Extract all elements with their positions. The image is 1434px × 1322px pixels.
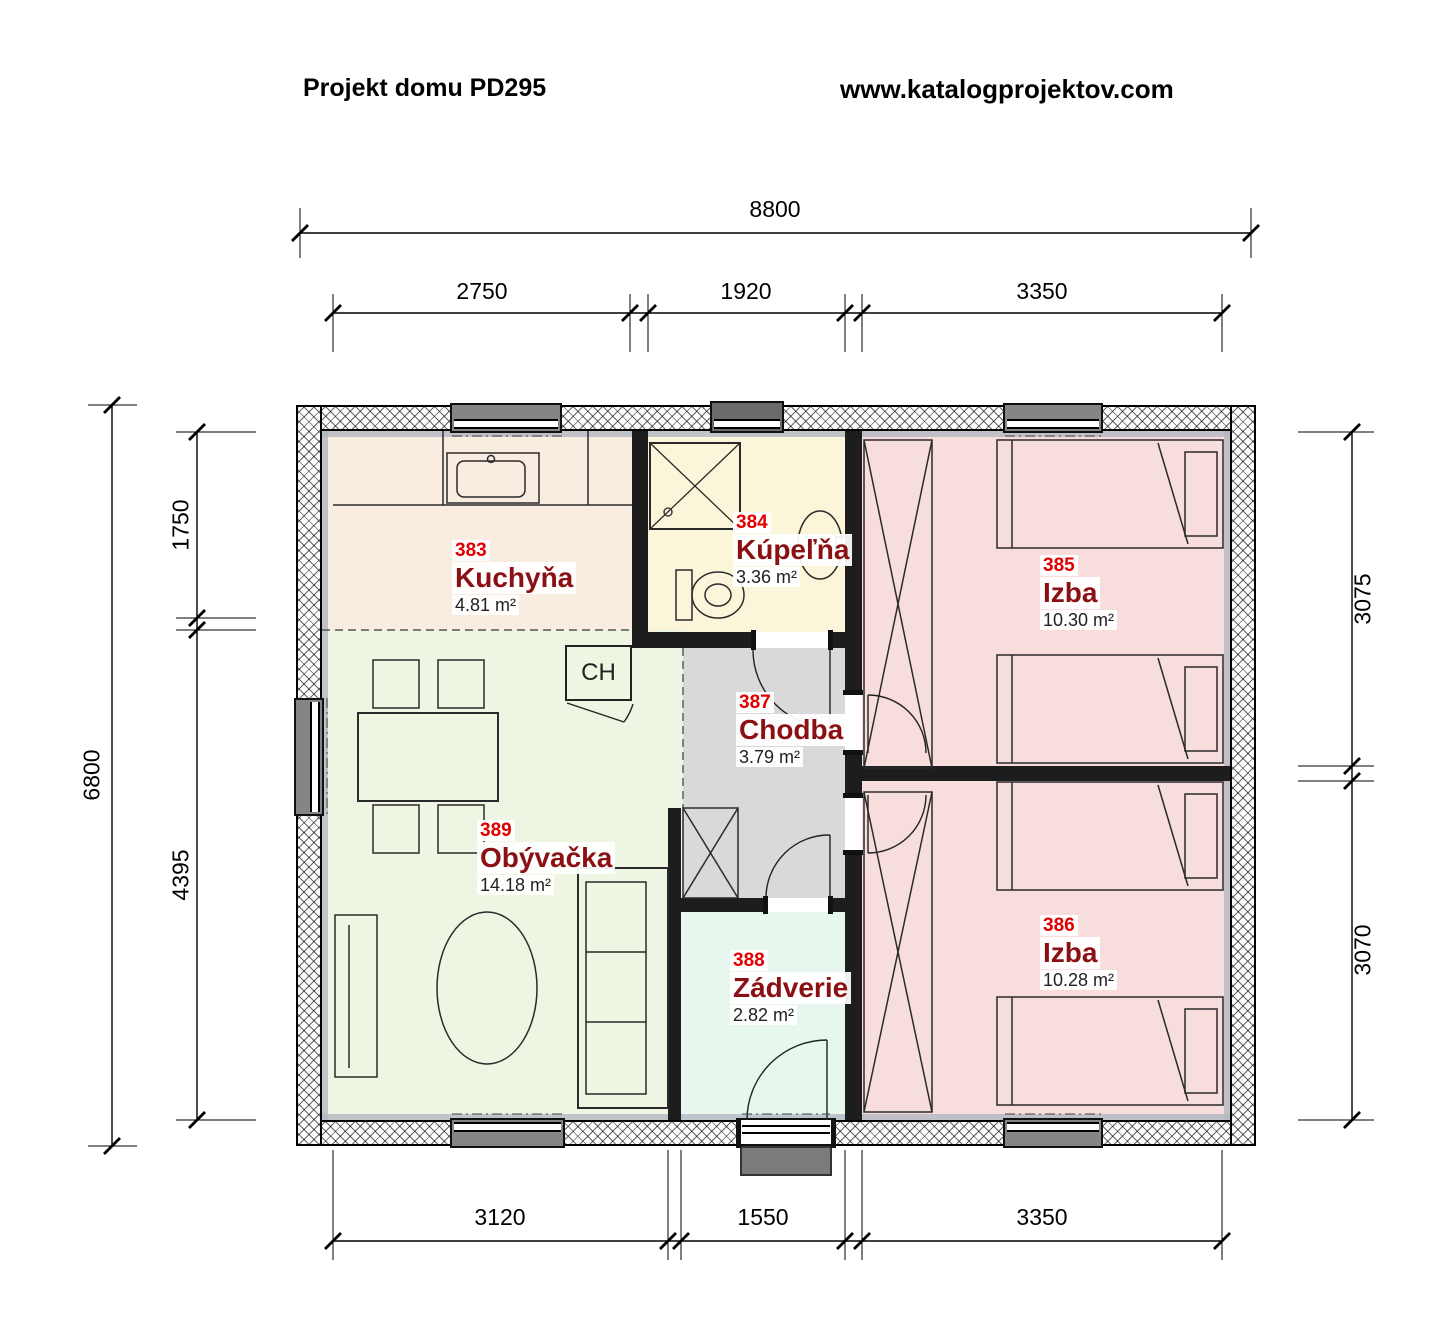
fridge-box: CH (565, 645, 632, 701)
window-inner-dashes (327, 436, 1102, 1114)
room-label-chodba: 387 Chodba 3.79 m² (736, 692, 846, 767)
hall-wardrobe (683, 808, 738, 898)
sofa (578, 868, 668, 1108)
coffee-table-oval (437, 912, 537, 1064)
wardrobe-386 (864, 792, 932, 1112)
bed-386-bottom (997, 997, 1223, 1105)
room-area-value: 3.36 m² (733, 567, 800, 587)
plan-drawing-layer (0, 0, 1434, 1322)
bed-386-top (997, 782, 1223, 890)
room-area-value: 10.30 m² (1040, 610, 1117, 630)
room-number: 386 (1040, 915, 1078, 936)
room-area-value: 3.79 m² (736, 747, 803, 767)
room-number: 389 (477, 820, 515, 841)
room-label-izba-386: 386 Izba 10.28 m² (1040, 915, 1117, 990)
bathroom-shower (650, 443, 740, 529)
room-name: Kuchyňa (452, 562, 576, 593)
room-label-kuchyna: 383 Kuchyňa 4.81 m² (452, 540, 576, 615)
room-name: Kúpeľňa (733, 534, 852, 565)
dimension-ticks (104, 225, 1360, 1249)
dim-bottom-segment-2: 3350 (1016, 1204, 1067, 1231)
room-number: 383 (452, 540, 490, 561)
dim-left-segment-0: 1750 (168, 499, 195, 550)
dim-right-segment-0: 3075 (1350, 573, 1377, 624)
room-label-zadverie: 388 Zádverie 2.82 m² (730, 950, 851, 1025)
room-number: 385 (1040, 555, 1078, 576)
room-name: Izba (1040, 577, 1100, 608)
sideboard (335, 915, 377, 1077)
room-name: Zádverie (730, 972, 851, 1003)
bed-385-top (997, 440, 1223, 548)
dim-top-segment-2: 3350 (1016, 278, 1067, 305)
room-label-izba-385: 385 Izba 10.30 m² (1040, 555, 1117, 630)
fridge-label: CH (581, 659, 616, 687)
room-name: Izba (1040, 937, 1100, 968)
room-number: 388 (730, 950, 768, 971)
dim-top-overall: 8800 (749, 196, 800, 223)
room-label-kupelna: 384 Kúpeľňa 3.36 m² (733, 512, 852, 587)
kitchen-counter-sink (333, 431, 632, 505)
dim-bottom-segment-1: 1550 (737, 1204, 788, 1231)
dim-left-segment-1: 4395 (168, 849, 195, 900)
room-number: 384 (733, 512, 771, 533)
bed-385-bottom (997, 655, 1223, 763)
wardrobe-385 (864, 440, 932, 768)
room-area-value: 2.82 m² (730, 1005, 797, 1025)
room-number: 387 (736, 692, 774, 713)
room-label-obyvacka: 389 Obývačka 14.18 m² (477, 820, 615, 895)
dim-left-overall: 6800 (79, 749, 106, 800)
room-name: Obývačka (477, 842, 615, 873)
dim-right-segment-1: 3070 (1350, 924, 1377, 975)
floor-plan-page: Projekt domu PD295 www.katalogprojektov.… (0, 0, 1434, 1322)
dim-top-segment-0: 2750 (456, 278, 507, 305)
room-name: Chodba (736, 714, 846, 745)
room-area-value: 14.18 m² (477, 875, 554, 895)
room-area-value: 10.28 m² (1040, 970, 1117, 990)
dim-top-segment-1: 1920 (720, 278, 771, 305)
room-area-value: 4.81 m² (452, 595, 519, 615)
dim-bottom-segment-0: 3120 (474, 1204, 525, 1231)
